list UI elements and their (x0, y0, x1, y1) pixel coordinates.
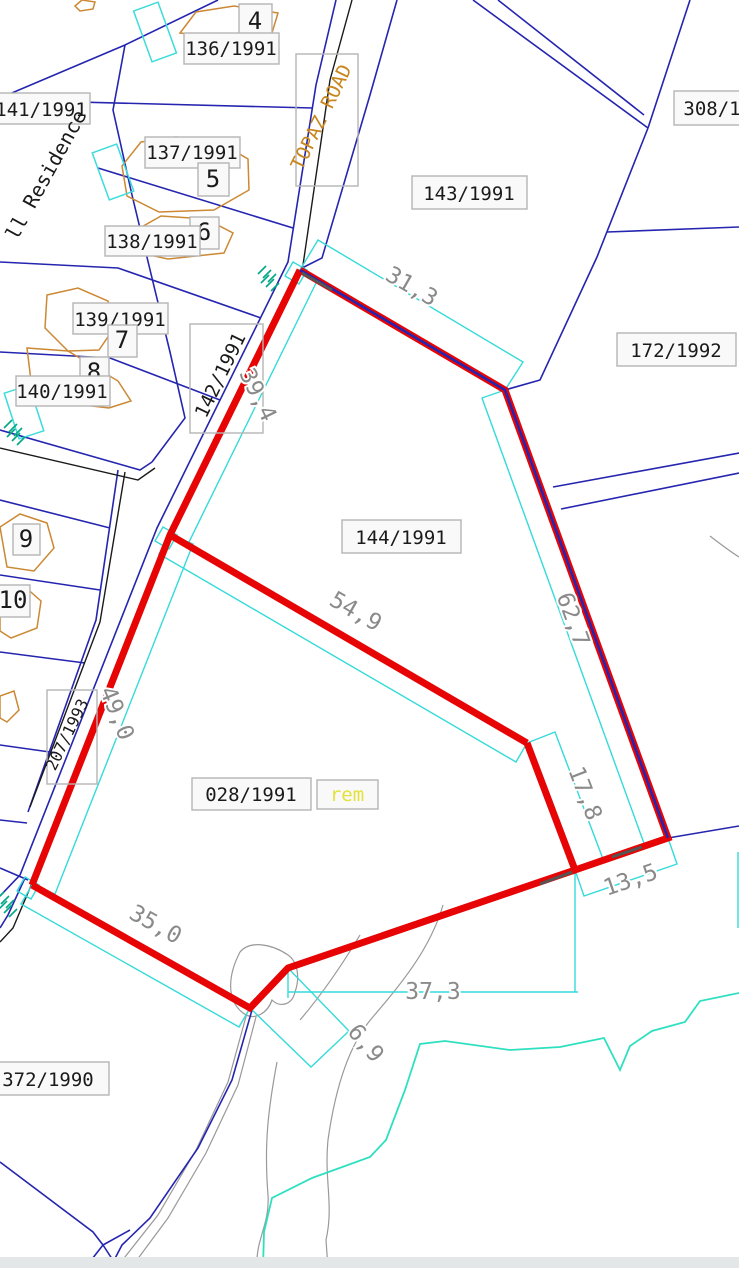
svg-text:372/1990: 372/1990 (2, 1069, 94, 1091)
svg-text:rem: rem (330, 784, 364, 806)
svg-text:17,8: 17,8 (562, 763, 606, 824)
svg-text:140/1991: 140/1991 (16, 381, 108, 403)
residence-label: ll Residence (0, 106, 91, 244)
svg-text:172/1992: 172/1992 (630, 340, 722, 362)
svg-text:143/1991: 143/1991 (423, 183, 515, 205)
svg-text:136/1991: 136/1991 (185, 38, 277, 60)
track-line (131, 1017, 256, 1268)
svg-text:144/1991: 144/1991 (355, 527, 447, 549)
boundary-over-highlight (300, 270, 668, 838)
parcel-label-172-1992: 172/1992 (617, 333, 736, 366)
cadastral-map: 4136/1991141/1991137/199156138/1991139/1… (0, 0, 739, 1268)
svg-text:9: 9 (19, 525, 33, 553)
parcel-label-143-1991: 143/1991 (412, 176, 527, 209)
dimension-17-8: 17,8 (562, 763, 606, 824)
svg-text:138/1991: 138/1991 (106, 231, 198, 253)
road-label-topaz-road: TOPAZ ROAD (287, 54, 358, 186)
parcel-label-028-rem: rem (317, 780, 378, 809)
dimension-13-5: 13,5 (600, 859, 661, 902)
svg-text:7: 7 (115, 326, 129, 354)
svg-text:028/1991: 028/1991 (205, 784, 297, 806)
parcel-label-140-1991: 140/1991 (16, 376, 110, 406)
svg-text:31,3: 31,3 (381, 262, 442, 312)
lot-number-10: 10 (0, 585, 30, 617)
cadastral-map-canvas: 4136/1991141/1991137/199156138/1991139/1… (0, 0, 739, 1268)
svg-text:TOPAZ ROAD: TOPAZ ROAD (287, 61, 357, 173)
svg-text:37,3: 37,3 (405, 979, 460, 1005)
lot-number-9: 9 (13, 524, 40, 555)
parcel-label-144-1991: 144/1991 (342, 520, 461, 553)
dimension-37-3: 37,3 (405, 979, 460, 1005)
lot-number-7: 7 (108, 325, 137, 357)
svg-text:308/1: 308/1 (683, 98, 739, 120)
parcel-label-308-1: 308/1 (674, 91, 739, 125)
svg-text:137/1991: 137/1991 (146, 142, 238, 164)
track-line (114, 1013, 247, 1268)
parcel-label-372-1990: 372/1990 (0, 1062, 109, 1095)
contour-lines (114, 536, 739, 1268)
parcel-label-138-1991: 138/1991 (105, 226, 200, 256)
bottom-edge-band (0, 1257, 739, 1268)
svg-text:10: 10 (0, 586, 27, 614)
svg-text:ll Residence: ll Residence (0, 106, 91, 244)
svg-text:6,9: 6,9 (342, 1019, 389, 1068)
river-line (263, 993, 739, 1268)
parcel-label-136-1991: 136/1991 (184, 33, 279, 64)
parcel-label-028-1991: 028/1991 (192, 778, 311, 810)
lot-number-5: 5 (198, 163, 229, 196)
svg-text:4: 4 (248, 7, 262, 35)
dimension-31-3: 31,3 (381, 262, 442, 312)
svg-text:13,5: 13,5 (600, 859, 661, 902)
dimension-6-9: 6,9 (342, 1019, 389, 1068)
svg-text:5: 5 (206, 165, 220, 193)
